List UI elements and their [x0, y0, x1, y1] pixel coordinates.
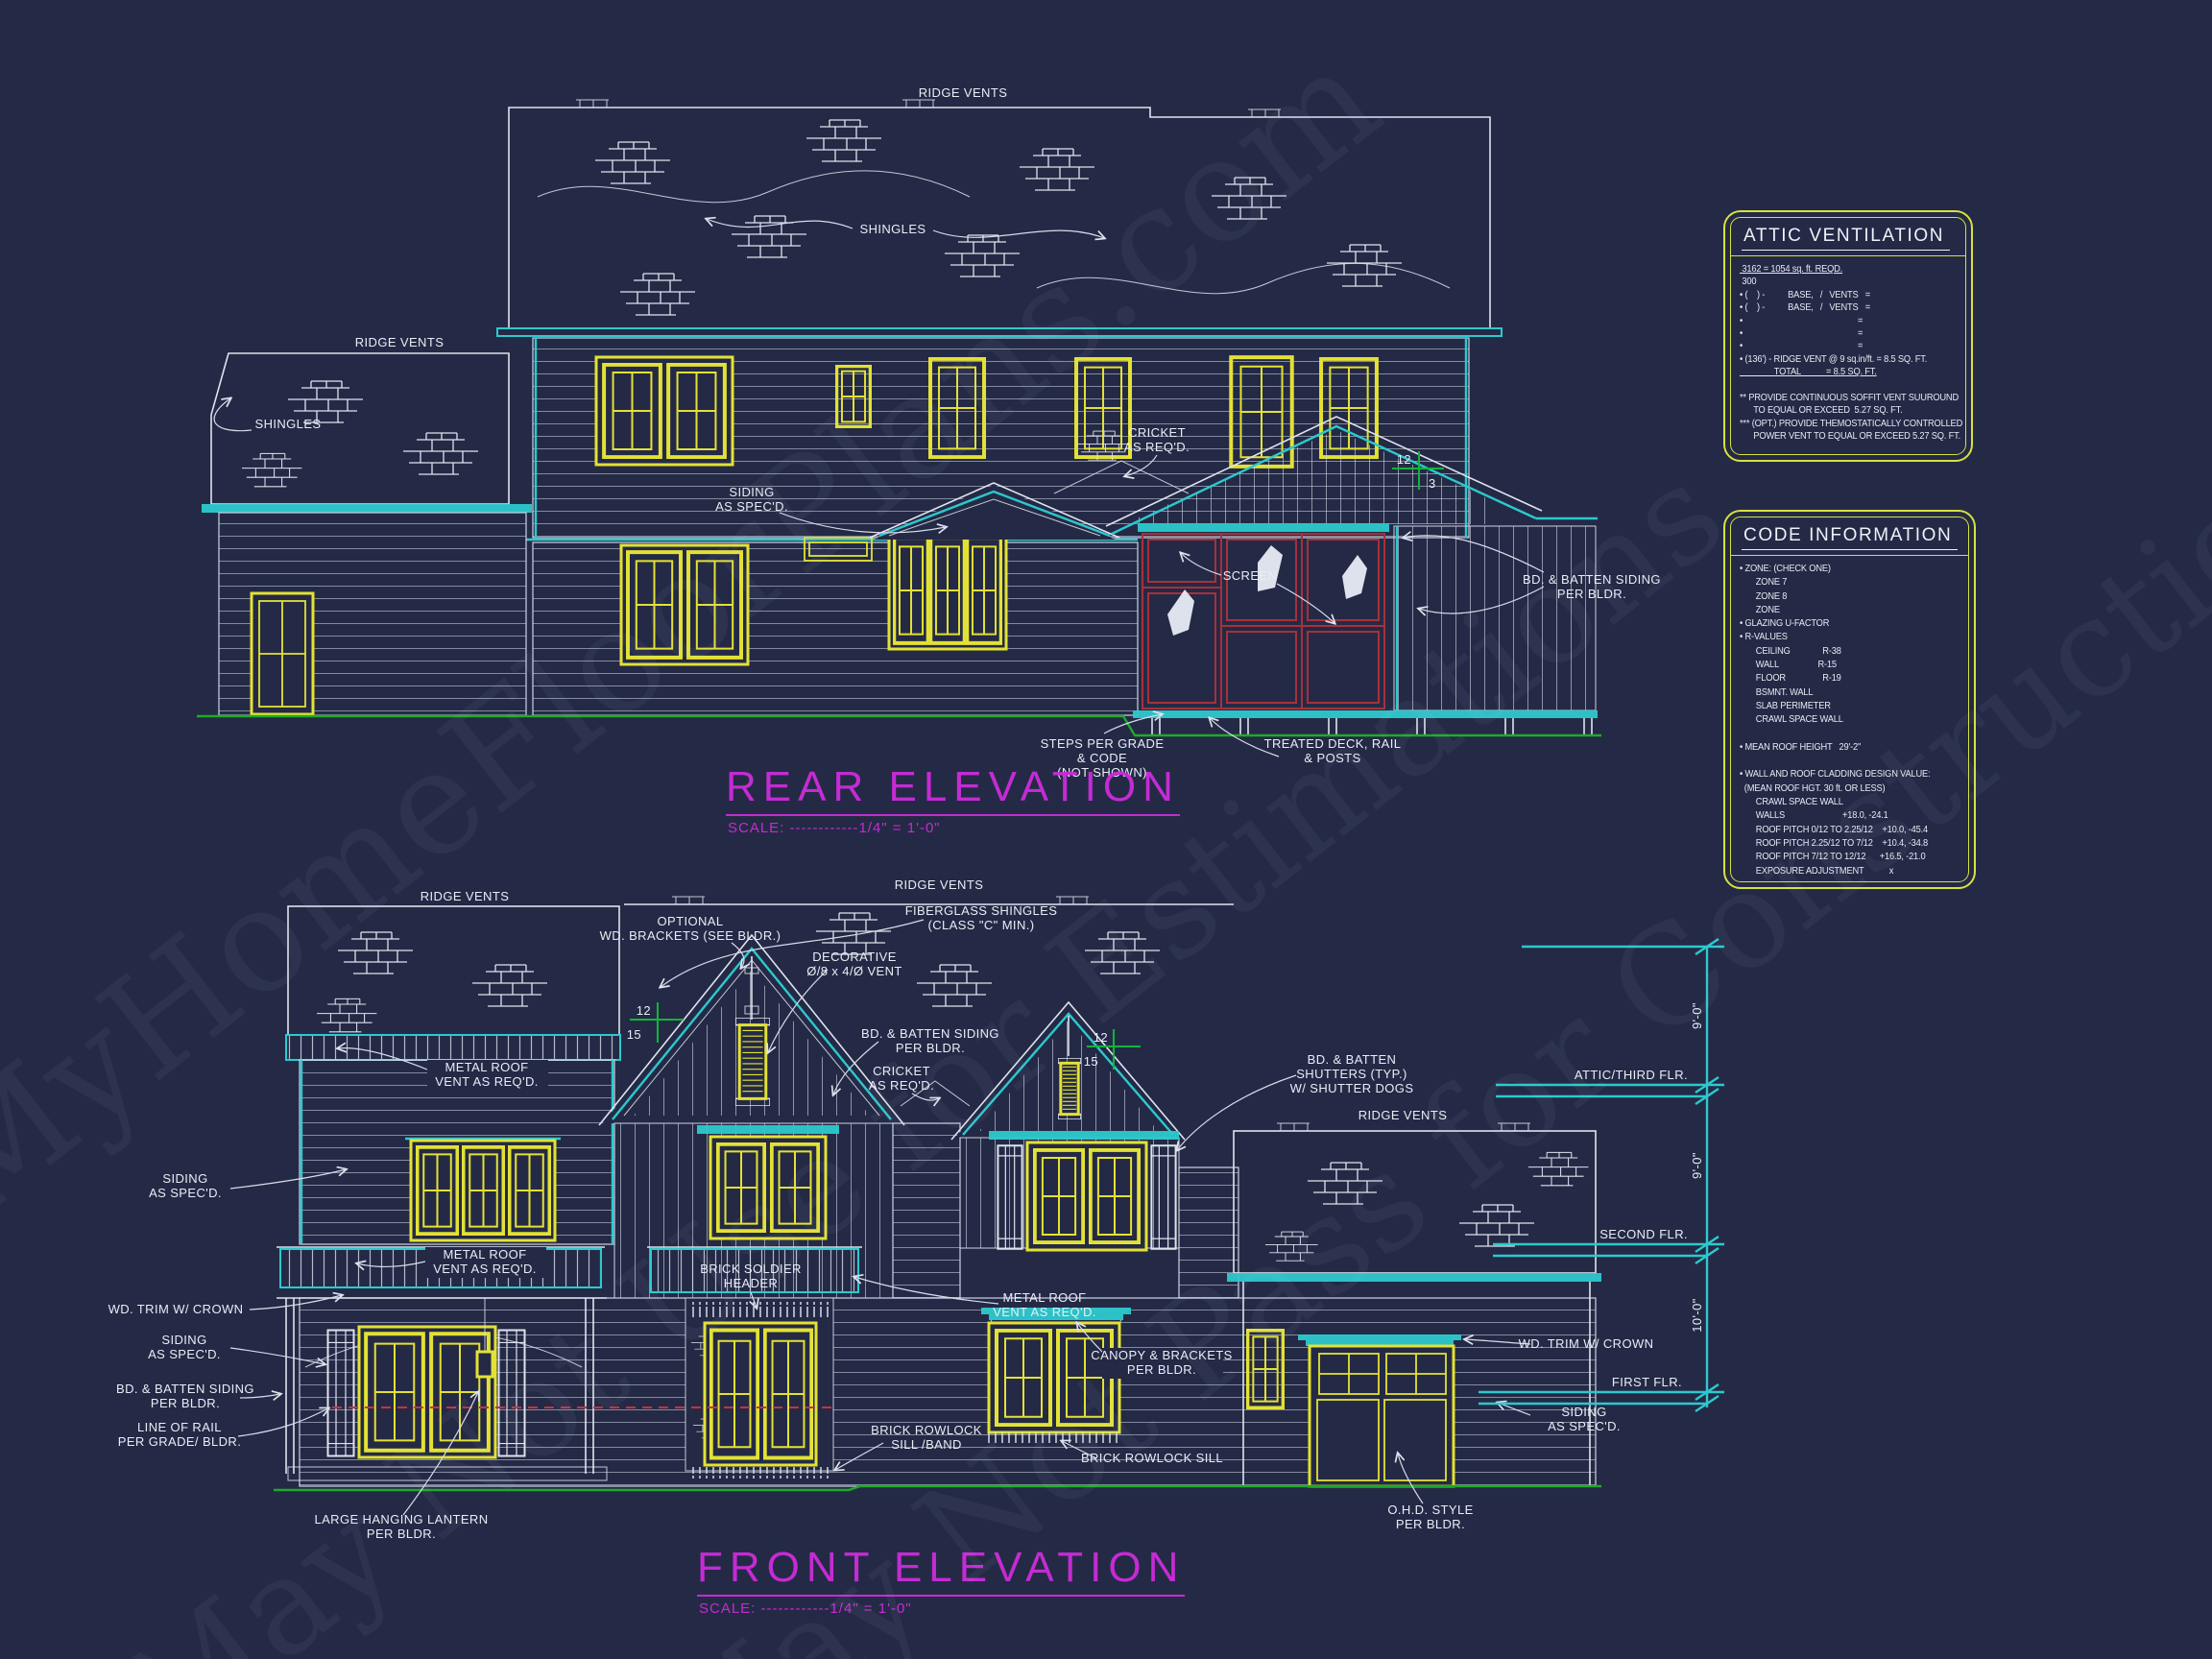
- floor-label: FIRST FLR.: [1612, 1375, 1682, 1389]
- brick-rowlock-sill: [987, 1432, 1121, 1444]
- code-panel-row: ZONE: [1740, 604, 1944, 617]
- label-cricket: CRICKET: [1128, 425, 1186, 440]
- code-panel-row: BSMNT. WALL: [1740, 686, 1944, 700]
- code-panel-row: • GLAZING U-FACTOR: [1740, 617, 1944, 631]
- label-siding: AS SPEC'D.: [1548, 1419, 1621, 1433]
- label-brackets: WD. BRACKETS (SEE BLDR.): [600, 928, 781, 943]
- label-wd-trim: WD. TRIM W/ CROWN: [108, 1302, 244, 1316]
- window-head-trim: [989, 1131, 1179, 1140]
- attic-panel-row: POWER VENT TO EQUAL OR EXCEED 5.27 SQ. F…: [1740, 430, 1941, 443]
- window: [359, 1327, 495, 1457]
- attic-panel-row: ** PROVIDE CONTINUOUS SOFFIT VENT SUUROU…: [1740, 392, 1941, 404]
- window: [930, 359, 984, 457]
- label-bd-batten: BD. & BATTEN SIDING: [861, 1026, 999, 1041]
- blueprint-sheet: 12 3 RIDGE VENTS SHINGLES RIDGE VENTS SH…: [0, 0, 2212, 1659]
- label-wd-trim: WD. TRIM W/ CROWN: [1519, 1336, 1654, 1351]
- label-bd-batten: BD. & BATTEN SIDING: [1523, 572, 1661, 587]
- code-panel-row: CRAWL SPACE WALL: [1740, 796, 1944, 809]
- shingle-patch: [816, 913, 891, 954]
- front-elevation-drawing: 12 15 12 15 RIDGE VENTS R: [108, 878, 1654, 1541]
- window: [1231, 357, 1291, 467]
- leader: [1177, 1075, 1296, 1150]
- dim-value: 9'-0": [1690, 1152, 1704, 1179]
- leader: [1277, 584, 1334, 623]
- label-siding: SIDING: [1561, 1405, 1606, 1419]
- label-screen: SCREEN: [1223, 568, 1278, 583]
- code-panel-row: • MEAN ROOF HEIGHT 29'-2": [1740, 741, 1944, 755]
- code-panel-row: CEILING R-38: [1740, 645, 1944, 659]
- shingle-patch: [1085, 932, 1160, 974]
- code-panel-row: WALLS +18.0, -24.1: [1740, 809, 1944, 823]
- label-metal-roof: METAL ROOF: [1002, 1290, 1086, 1305]
- label-steps: STEPS PER GRADE: [1041, 736, 1165, 751]
- left-wing-fascia: [202, 504, 532, 513]
- shingle-patch: [472, 965, 547, 1006]
- attic-panel-row: [1740, 379, 1941, 392]
- label-metal-roof: VENT AS REQ'D.: [993, 1305, 1096, 1319]
- pitch-run: 12: [1397, 452, 1411, 467]
- code-panel-row: • ZONE: (CHECK ONE): [1740, 563, 1944, 576]
- pitch-rise: 3: [1429, 476, 1436, 491]
- code-panel-row: [1740, 755, 1944, 768]
- screen-highlights: [1167, 545, 1367, 636]
- attic-ventilation-panel-inner: ATTIC VENTILATION 3162 = 1054 sq. ft. RE…: [1730, 217, 1966, 455]
- label-rowlock: BRICK ROWLOCK SILL: [1081, 1451, 1223, 1465]
- window: [621, 545, 748, 664]
- gable-vent: [1058, 1058, 1081, 1119]
- shingle-patch: [1020, 149, 1094, 190]
- rear-main-roof: [509, 108, 1490, 328]
- rear-elevation-scale: SCALE: ------------1/4" = 1'-0": [728, 820, 941, 836]
- code-panel-row: EXPOSURE ADJUSTMENT x: [1740, 865, 1944, 878]
- leader: [214, 398, 252, 431]
- fascia-band: [497, 328, 1502, 336]
- porch-header: [1138, 523, 1389, 532]
- attic-panel-row: • =: [1740, 340, 1941, 352]
- label-siding: SIDING: [729, 485, 774, 499]
- label-cricket: AS REQ'D.: [1124, 440, 1190, 454]
- code-panel-row: • R-VALUES: [1740, 631, 1944, 644]
- shingle-patch: [403, 433, 478, 474]
- attic-panel-row: TOTAL = 8.5 SQ. FT.: [1740, 366, 1941, 378]
- rear-bb-wall: [1394, 526, 1596, 710]
- attic-panel-row: *** (OPT.) PROVIDE THEMOSTATICALLY CONTR…: [1740, 418, 1941, 430]
- code-panel-row: [1740, 728, 1944, 741]
- label-rowlock: BRICK ROWLOCK: [871, 1423, 982, 1437]
- code-panel-row: CRAWL SPACE WALL: [1740, 713, 1944, 727]
- wall: [893, 1123, 960, 1298]
- leader: [933, 230, 1104, 238]
- dim-value: 10'-0": [1690, 1298, 1704, 1333]
- entry: [685, 1298, 833, 1479]
- label-shutters: SHUTTERS (TYP.): [1296, 1067, 1407, 1081]
- label-shingles: SHINGLES: [255, 417, 322, 431]
- code-panel-row: SLAB PERIMETER: [1740, 700, 1944, 713]
- label-canopy: CANOPY & BRACKETS: [1091, 1348, 1232, 1362]
- label-brick-soldier: HEADER: [724, 1276, 779, 1290]
- code-information-panel: CODE INFORMATION • ZONE: (CHECK ONE) ZON…: [1723, 510, 1976, 889]
- attic-panel-row: 3162 = 1054 sq. ft. REQD.: [1740, 263, 1941, 276]
- shingle-patch: [595, 142, 670, 183]
- attic-panel-row: TO EQUAL OR EXCEED 5.27 SQ. FT.: [1740, 404, 1941, 417]
- label-ridge-vents: RIDGE VENTS: [919, 85, 1008, 100]
- shingle-patch: [1265, 1232, 1318, 1261]
- label-bd-batten: PER BLDR.: [896, 1041, 965, 1055]
- window-head-trim: [697, 1125, 839, 1134]
- pitch-rise: 15: [1084, 1054, 1098, 1069]
- garage-fascia: [1227, 1273, 1601, 1282]
- grade-line: [197, 716, 1601, 735]
- attic-panel-rows: 3162 = 1054 sq. ft. REQD. 300• ( ) - BAS…: [1740, 263, 1941, 444]
- label-lantern: PER BLDR.: [367, 1527, 436, 1541]
- code-panel-row: ROOF PITCH 2.25/12 TO 7/12 +10.4, -34.8: [1740, 837, 1944, 851]
- code-panel-row: FLOOR R-19: [1740, 672, 1944, 685]
- label-deck: & POSTS: [1304, 751, 1360, 765]
- pitch-run: 12: [1094, 1030, 1108, 1045]
- label-ridge-vents: RIDGE VENTS: [895, 878, 984, 892]
- shingle-patch: [620, 274, 695, 315]
- dim-value: 9'-0": [1690, 1002, 1704, 1029]
- pitch-rise: 15: [627, 1027, 641, 1042]
- code-panel-row: ZONE 7: [1740, 576, 1944, 589]
- window: [411, 1141, 555, 1240]
- shingle-patch: [945, 235, 1020, 276]
- code-panel-row: ROOF PITCH 7/12 TO 12/12 +16.5, -21.0: [1740, 851, 1944, 864]
- code-panel-title: CODE INFORMATION: [1742, 525, 1958, 550]
- label-ridge-vents: RIDGE VENTS: [355, 335, 445, 349]
- label-metal-roof: VENT AS REQ'D.: [435, 1074, 539, 1089]
- shingle-patch: [1212, 178, 1286, 219]
- shingle-patch: [338, 932, 413, 974]
- label-brackets: OPTIONAL: [658, 914, 724, 928]
- label-bd-batten: BD. & BATTEN SIDING: [116, 1382, 254, 1396]
- label-lantern: LARGE HANGING LANTERN: [314, 1512, 488, 1527]
- label-shutters: W/ SHUTTER DOGS: [1290, 1081, 1414, 1095]
- attic-panel-row: • =: [1740, 315, 1941, 327]
- label-deck: TREATED DECK, RAIL: [1264, 736, 1402, 751]
- label-siding: AS SPEC'D.: [715, 499, 788, 514]
- label-fiberglass: FIBERGLASS SHINGLES: [905, 903, 1058, 918]
- label-fiberglass: (CLASS "C" MIN.): [928, 918, 1035, 932]
- garage-roof: [1234, 1131, 1596, 1273]
- attic-ventilation-panel: ATTIC VENTILATION 3162 = 1054 sq. ft. RE…: [1723, 210, 1973, 462]
- front-elevation-scale: SCALE: ------------1/4" = 1'-0": [699, 1600, 912, 1617]
- window: [889, 532, 1006, 649]
- shingle-patch: [1308, 1163, 1382, 1204]
- code-information-panel-inner: CODE INFORMATION • ZONE: (CHECK ONE) ZON…: [1730, 517, 1969, 882]
- brick-rowlock-sill: [687, 1467, 833, 1479]
- brick-soldier-header: [687, 1302, 831, 1317]
- shingle-patch: [1528, 1152, 1588, 1185]
- attic-panel-row: • ( ) - BASE, / VENTS =: [1740, 301, 1941, 314]
- label-siding: AS SPEC'D.: [148, 1347, 221, 1361]
- attic-panel-row: 300: [1740, 276, 1941, 288]
- hanging-lantern: [477, 1352, 493, 1377]
- label-cricket: CRICKET: [873, 1064, 930, 1078]
- leader: [707, 219, 853, 228]
- label-ridge-vents: RIDGE VENTS: [1358, 1108, 1448, 1122]
- label-ohd: PER BLDR.: [1396, 1517, 1465, 1531]
- window: [1247, 1331, 1283, 1408]
- shingle-patch: [806, 120, 881, 161]
- label-metal-roof: METAL ROOF: [443, 1247, 526, 1262]
- deck-posts: [1152, 718, 1592, 735]
- label-siding: SIDING: [162, 1171, 207, 1186]
- window: [1076, 359, 1130, 457]
- label-decorative-vent: DECORATIVE: [812, 950, 897, 964]
- label-rowlock: SILL /BAND: [891, 1437, 962, 1452]
- deck-band: [1133, 710, 1598, 718]
- shingle-patch: [317, 998, 376, 1031]
- code-panel-row: ZONE 8: [1740, 590, 1944, 604]
- panel-separator: [1731, 255, 1965, 256]
- shingle-patch: [917, 965, 992, 1006]
- attic-panel-row: • =: [1740, 327, 1941, 340]
- label-decorative-vent: Ø/8 x 4/Ø VENT: [806, 964, 902, 978]
- label-metal-roof: METAL ROOF: [445, 1060, 528, 1074]
- window: [710, 1137, 826, 1238]
- attic-panel-row: • ( ) - BASE, / VENTS =: [1740, 289, 1941, 301]
- code-panel-rows: • ZONE: (CHECK ONE) ZONE 7 ZONE 8 ZONE• …: [1740, 563, 1944, 878]
- label-metal-roof: VENT AS REQ'D.: [433, 1262, 537, 1276]
- window: [596, 357, 733, 465]
- code-panel-row: • WALL AND ROOF CLADDING DESIGN VALUE:: [1740, 768, 1944, 781]
- label-brick-soldier: BRICK SOLDIER: [700, 1262, 802, 1276]
- label-ohd: O.H.D. STYLE: [1387, 1503, 1473, 1517]
- label-line-of-rail: PER GRADE/ BLDR.: [118, 1434, 241, 1449]
- label-canopy: PER BLDR.: [1127, 1362, 1196, 1377]
- shingle-patch: [242, 453, 301, 486]
- code-panel-row: ROOF PITCH 0/12 TO 2.25/12 +10.0, -45.4: [1740, 824, 1944, 837]
- shingle-patch: [1327, 245, 1402, 286]
- label-ridge-vents: RIDGE VENTS: [421, 889, 510, 903]
- panel-separator: [1731, 555, 1968, 556]
- label-shutters: BD. & BATTEN: [1308, 1052, 1397, 1067]
- ridge-vent-ticks: [1277, 1123, 1530, 1131]
- code-panel-row: (MEAN ROOF HGT. 30 ft. OR LESS): [1740, 782, 1944, 796]
- attic-panel-row: • (136') - RIDGE VENT @ 9 sq.in/ft. = 8.…: [1740, 353, 1941, 366]
- gable-vent: [735, 1018, 770, 1106]
- rear-elevation-drawing: 12 3 RIDGE VENTS SHINGLES RIDGE VENTS SH…: [197, 85, 1661, 780]
- label-bd-batten: PER BLDR.: [151, 1396, 220, 1410]
- left-roof: [288, 906, 619, 1035]
- floor-label: SECOND FLR.: [1599, 1227, 1688, 1241]
- label-bd-batten: PER BLDR.: [1557, 587, 1626, 601]
- attic-panel-title: ATTIC VENTILATION: [1742, 226, 1950, 251]
- label-line-of-rail: LINE OF RAIL: [137, 1420, 222, 1434]
- code-panel-row: WALL R-15: [1740, 659, 1944, 672]
- metal-roof-band: [286, 1035, 620, 1060]
- floor-label: ATTIC/THIRD FLR.: [1575, 1068, 1688, 1082]
- window: [836, 366, 870, 427]
- rear-elevation-title: REAR ELEVATION: [726, 763, 1180, 816]
- front-elevation-title: FRONT ELEVATION: [697, 1544, 1185, 1597]
- label-shingles: SHINGLES: [860, 222, 926, 236]
- label-siding: SIDING: [161, 1333, 206, 1347]
- window: [1027, 1142, 1146, 1250]
- shingle-patch: [1459, 1205, 1534, 1246]
- pitch-run: 12: [637, 1003, 651, 1018]
- label-cricket: AS REQ'D.: [869, 1078, 934, 1093]
- ridge-vent-ticks: [576, 100, 1281, 117]
- door: [252, 593, 313, 714]
- garage-door: [1298, 1334, 1461, 1486]
- label-siding: AS SPEC'D.: [149, 1186, 222, 1200]
